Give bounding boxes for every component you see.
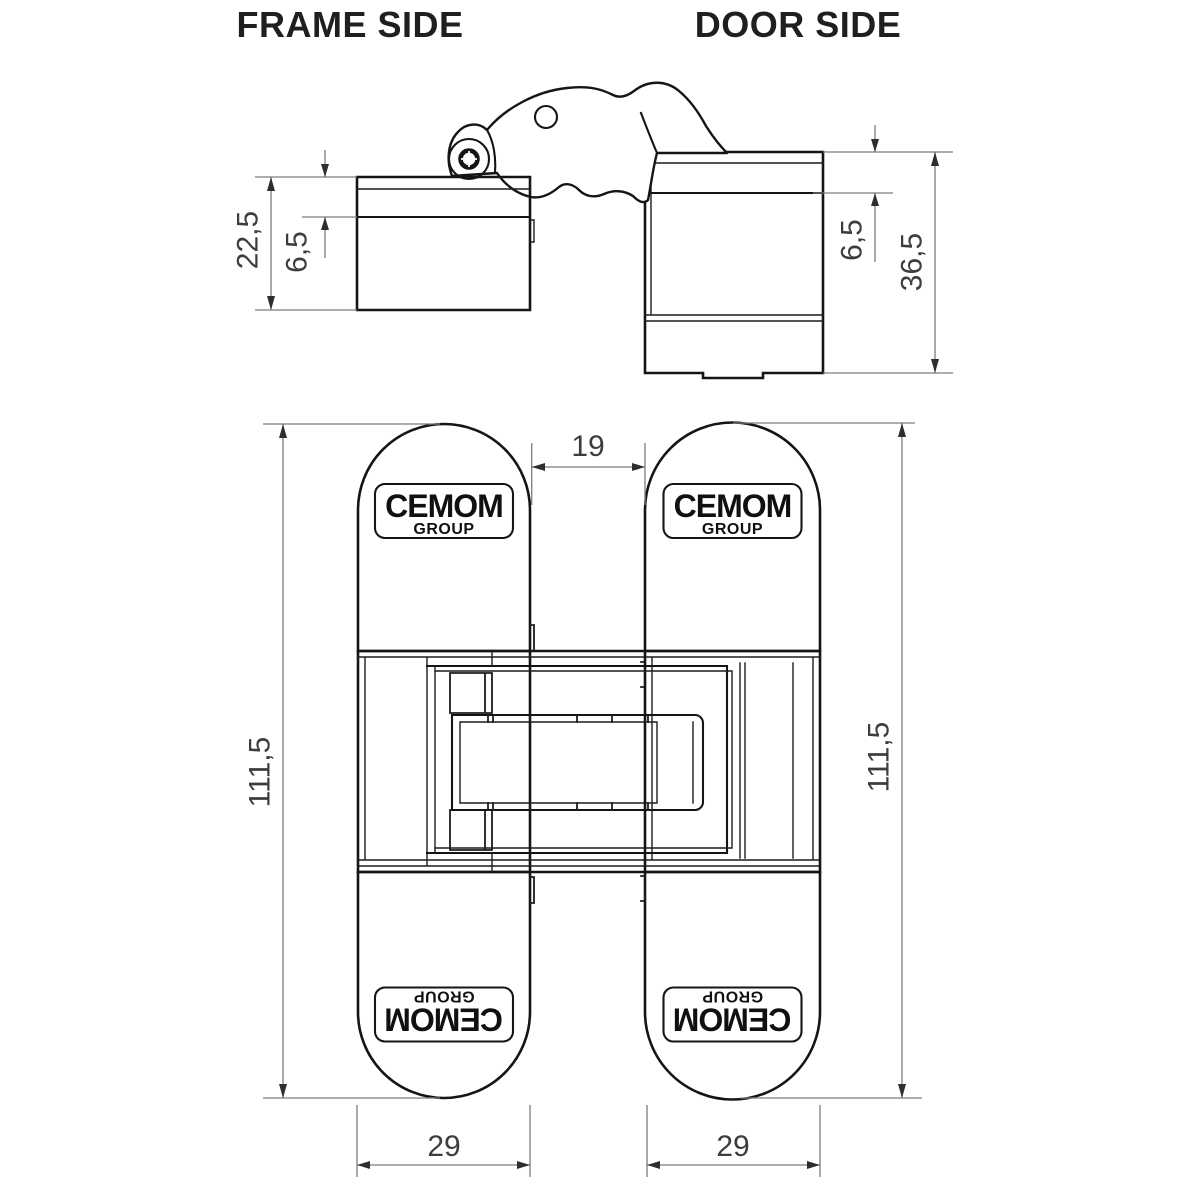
frame-plate-section <box>357 177 534 310</box>
dim-door-length: 111,5 <box>863 722 896 793</box>
logo-sub-text: GROUP <box>413 988 474 1005</box>
arrowhead <box>517 1161 530 1169</box>
arrowhead <box>279 424 287 438</box>
logo-upper-left: CEMOM GROUP <box>375 484 513 538</box>
hinge-arm-silhouette <box>449 83 727 202</box>
hinge-arm <box>449 83 727 202</box>
arrowhead <box>279 1084 287 1098</box>
arrowhead <box>532 463 545 471</box>
arrowhead <box>267 296 275 310</box>
arrowhead <box>871 193 879 206</box>
link-bar-outer <box>452 715 703 810</box>
title-frame-side: FRAME SIDE <box>236 4 463 45</box>
dim-frame-width: 29 <box>427 1130 460 1163</box>
dim-frame-flange-depth: 6,5 <box>281 231 314 273</box>
arrowhead <box>632 463 645 471</box>
door-body-lower <box>645 872 820 1100</box>
link-bar-inner <box>460 722 693 803</box>
link-housing <box>427 666 727 853</box>
front-view-dim-lines <box>263 423 922 1177</box>
logo-brand-text: CEMOM <box>674 488 792 524</box>
door-body-section <box>645 152 823 378</box>
arrowhead <box>321 217 329 230</box>
frame-plate-outline <box>357 177 530 310</box>
logo-upper-right: CEMOM GROUP <box>664 484 802 538</box>
logo-brand-text: CEMOM <box>385 488 503 524</box>
dim-door-flange-depth: 6,5 <box>836 219 869 261</box>
door-body-outline <box>645 152 823 378</box>
titles: FRAME SIDE DOOR SIDE <box>236 4 901 45</box>
arrowhead <box>267 177 275 191</box>
frame-body-lower <box>358 872 530 1098</box>
dim-frame-total-depth: 22,5 <box>232 211 265 269</box>
logo-lower-left: CEMOM GROUP <box>375 988 513 1042</box>
link-guide-blocks <box>450 673 492 850</box>
arrowhead <box>357 1161 370 1169</box>
logo-brand-text: CEMOM <box>385 1002 503 1038</box>
arrowhead <box>931 359 939 373</box>
dim-door-width: 29 <box>716 1130 749 1163</box>
logo-sub-text: GROUP <box>702 521 763 538</box>
arrowhead <box>898 423 906 437</box>
title-door-side: DOOR SIDE <box>695 4 902 45</box>
top-view: 22,5 6,5 6,5 36,5 <box>232 83 954 378</box>
dim-door-total-depth: 36,5 <box>896 233 929 291</box>
mechanism-detail-lines <box>358 651 820 872</box>
logo-lower-right: CEMOM GROUP <box>664 988 802 1042</box>
arrowhead <box>807 1161 820 1169</box>
arrowhead <box>931 152 939 166</box>
link-bar-ticks <box>488 715 648 810</box>
technical-drawing-page: FRAME SIDE DOOR SIDE <box>0 0 1200 1200</box>
arrowhead <box>321 164 329 177</box>
arrowhead <box>898 1084 906 1098</box>
logo-sub-text: GROUP <box>702 988 763 1005</box>
link-housing-inner <box>435 671 732 848</box>
dim-frame-length: 111,5 <box>244 737 277 808</box>
frame-plate-detail-lines <box>357 189 534 242</box>
front-view: CEMOM GROUP CEMOM GROUP CEMOM GROUP CEMO… <box>244 423 923 1178</box>
dim-gap-width: 19 <box>571 430 604 463</box>
hinge-technical-drawing: FRAME SIDE DOOR SIDE <box>0 0 1200 1200</box>
door-body-detail-lines <box>645 163 823 321</box>
arrowhead <box>647 1161 660 1169</box>
arrowhead <box>871 139 879 152</box>
logo-sub-text: GROUP <box>413 521 474 538</box>
logo-brand-text: CEMOM <box>674 1002 792 1038</box>
linkage-mechanism <box>358 651 820 872</box>
